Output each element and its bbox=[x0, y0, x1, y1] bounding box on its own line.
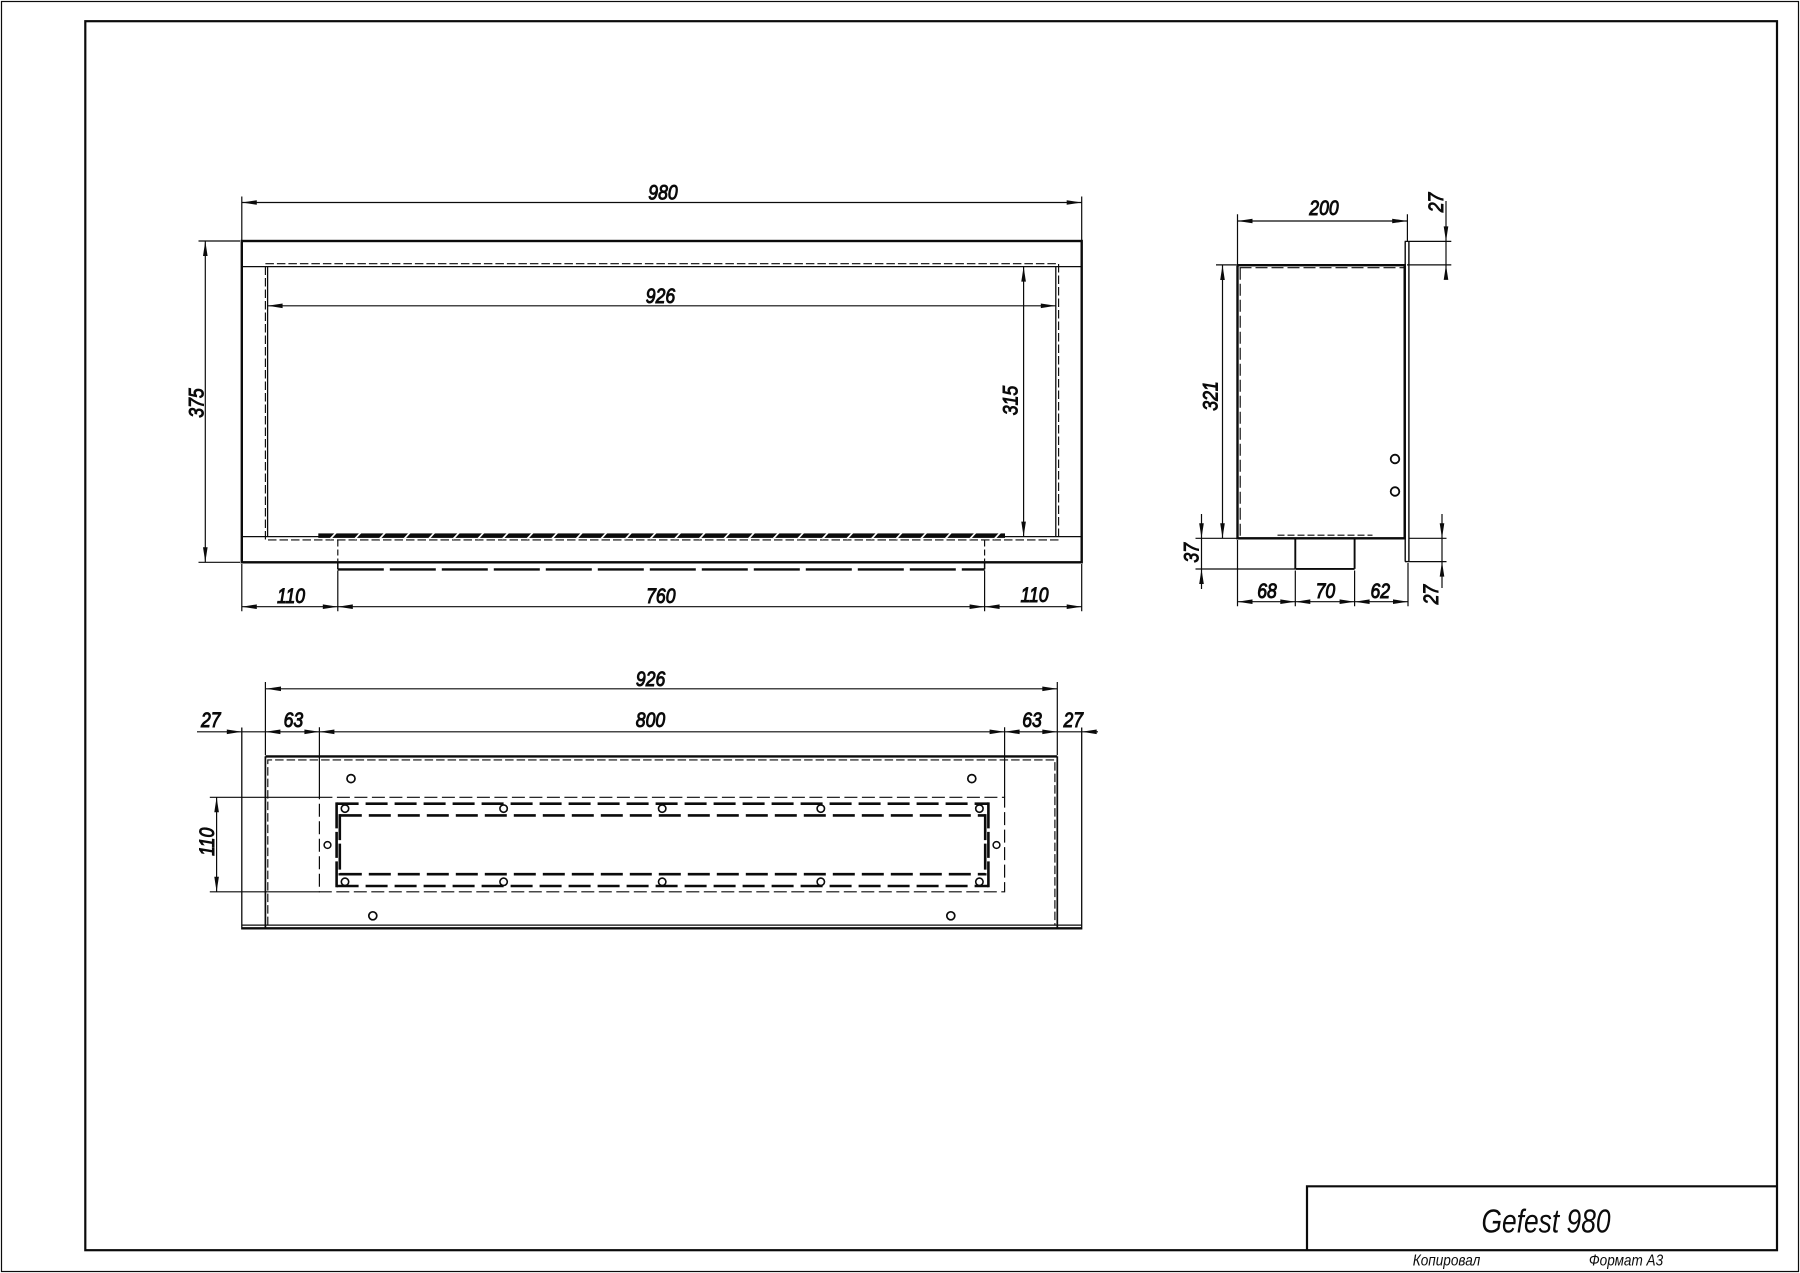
svg-text:70: 70 bbox=[1316, 579, 1336, 603]
svg-text:110: 110 bbox=[1020, 583, 1048, 607]
svg-text:68: 68 bbox=[1257, 579, 1277, 603]
svg-text:315: 315 bbox=[999, 386, 1023, 415]
svg-text:27: 27 bbox=[1063, 708, 1084, 732]
svg-text:110: 110 bbox=[196, 828, 220, 856]
svg-text:63: 63 bbox=[1022, 708, 1042, 732]
svg-text:980: 980 bbox=[648, 181, 677, 205]
svg-text:760: 760 bbox=[646, 584, 675, 608]
svg-text:27: 27 bbox=[1419, 584, 1443, 605]
svg-text:200: 200 bbox=[1308, 197, 1338, 221]
svg-text:Gefest 980: Gefest 980 bbox=[1481, 1204, 1610, 1240]
svg-text:Формат А3: Формат А3 bbox=[1589, 1253, 1664, 1270]
svg-text:63: 63 bbox=[284, 708, 304, 732]
svg-text:62: 62 bbox=[1370, 579, 1390, 603]
svg-text:37: 37 bbox=[1180, 542, 1204, 563]
svg-text:926: 926 bbox=[636, 667, 665, 691]
svg-text:321: 321 bbox=[1199, 381, 1223, 410]
svg-text:27: 27 bbox=[1425, 192, 1449, 213]
svg-text:800: 800 bbox=[636, 708, 665, 732]
svg-text:110: 110 bbox=[277, 584, 305, 608]
svg-text:375: 375 bbox=[185, 388, 209, 417]
svg-text:Копировал: Копировал bbox=[1413, 1253, 1481, 1270]
svg-text:27: 27 bbox=[200, 708, 221, 732]
svg-text:926: 926 bbox=[646, 284, 675, 308]
